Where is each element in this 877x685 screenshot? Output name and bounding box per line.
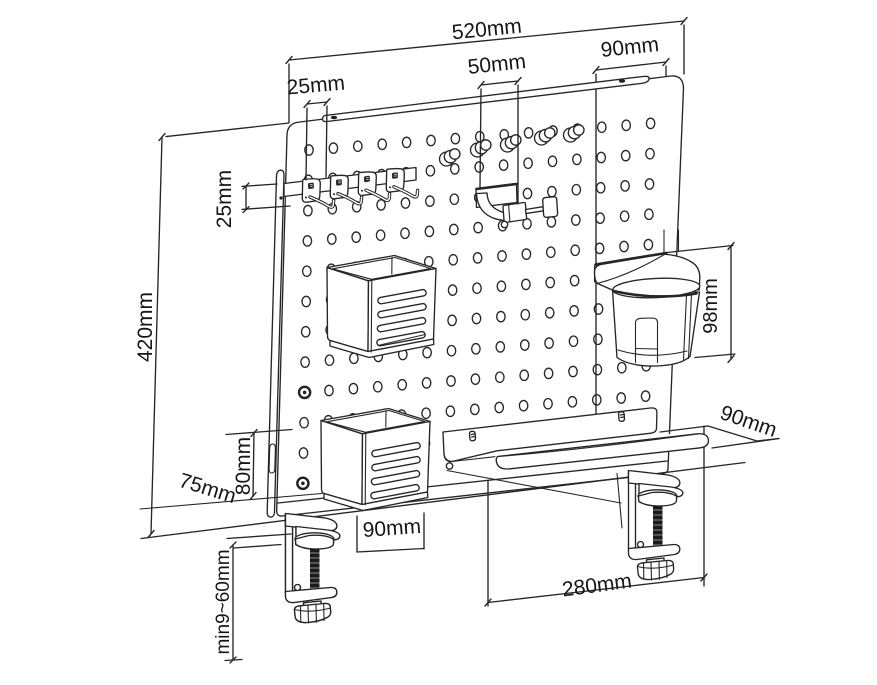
svg-text:min9~60mm: min9~60mm xyxy=(213,549,234,654)
svg-text:98mm: 98mm xyxy=(700,278,722,334)
svg-text:420mm: 420mm xyxy=(134,292,157,362)
svg-text:25mm: 25mm xyxy=(213,170,236,228)
svg-text:90mm: 90mm xyxy=(362,515,422,542)
